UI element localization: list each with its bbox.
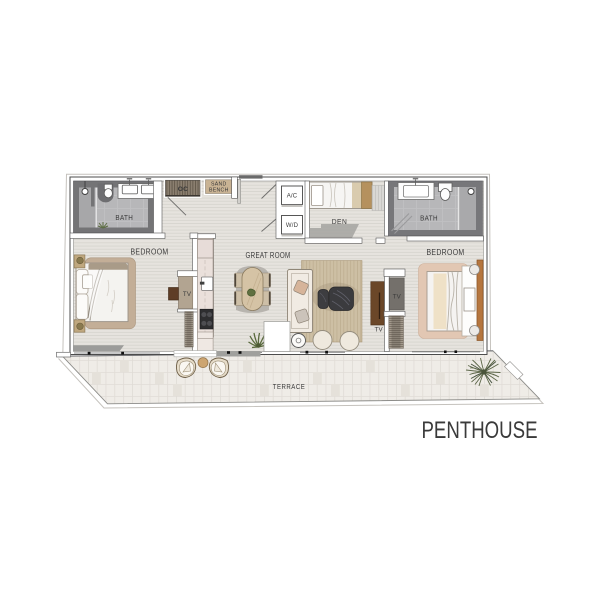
svg-text:SAND: SAND	[211, 181, 227, 187]
svg-text:BATH: BATH	[420, 216, 438, 223]
svg-text:TV: TV	[183, 291, 192, 298]
svg-text:TV: TV	[393, 293, 402, 300]
svg-text:DEN: DEN	[332, 217, 348, 226]
svg-text:BEDROOM: BEDROOM	[427, 247, 465, 257]
svg-text:PENTHOUSE: PENTHOUSE	[422, 417, 538, 444]
svg-text:BENCH: BENCH	[209, 188, 229, 194]
svg-text:TV: TV	[375, 327, 384, 334]
svg-text:GREAT ROOM: GREAT ROOM	[246, 250, 291, 260]
svg-text:BEDROOM: BEDROOM	[131, 246, 169, 256]
svg-text:A/C: A/C	[287, 194, 298, 200]
svg-text:OC: OC	[178, 186, 189, 193]
svg-text:BATH: BATH	[115, 215, 133, 222]
svg-text:TERRACE: TERRACE	[273, 384, 306, 391]
svg-text:W/D: W/D	[286, 223, 299, 229]
